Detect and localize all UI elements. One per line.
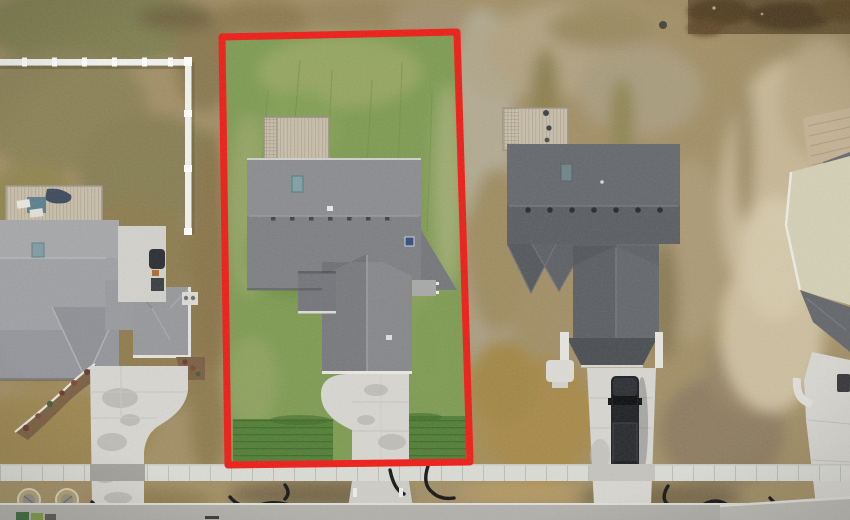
aerial-photo — [0, 0, 850, 520]
vignette — [0, 0, 850, 520]
